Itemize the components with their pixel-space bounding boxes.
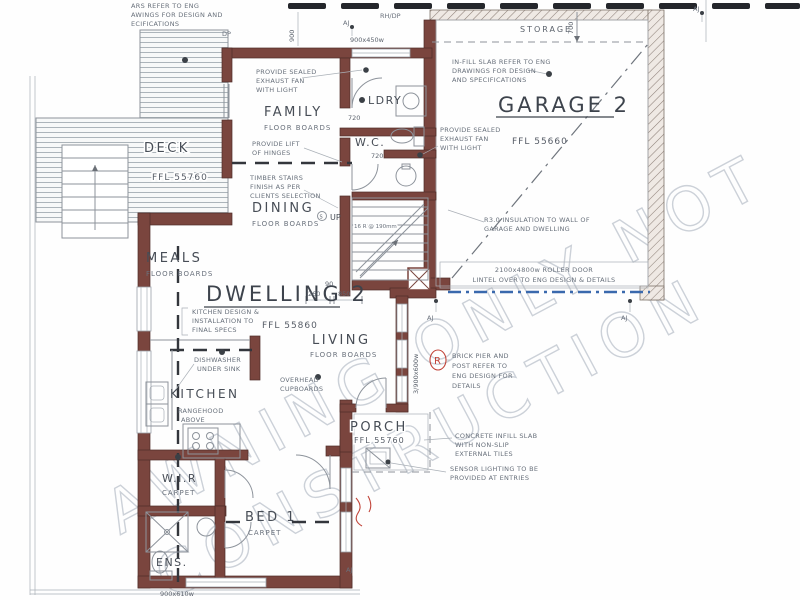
room-label-ens: ENS.: [156, 556, 188, 569]
deck-area: [36, 30, 228, 238]
sealed-fan1-2: EXHAUST FAN: [256, 77, 305, 85]
overhead-2: CUPBOARDS: [280, 385, 323, 393]
lift-hinges-1: PROVIDE LIFT: [252, 140, 300, 148]
room-label-garage: GARAGE 2: [498, 93, 630, 117]
room-label-porch: PORCH: [350, 420, 408, 435]
room-label-meals: MEALS: [146, 251, 202, 266]
brick-pier: [408, 268, 430, 290]
sealed-fan1-3: WITH LIGHT: [256, 86, 298, 94]
wir-floor: CARPET: [162, 489, 195, 497]
brick-pier-3: ENG DESIGN FOR: [452, 372, 513, 380]
meals-window: [137, 287, 151, 331]
aj-marker-1: AJ: [343, 19, 349, 27]
kitchen-window: [137, 351, 151, 433]
floor-plan-drawing: AWNING ONLY NOT CONSTRUCTION: [0, 0, 800, 600]
dim-850: 850: [338, 290, 350, 298]
dishwasher-2: UNDER SINK: [197, 365, 241, 373]
rangehood-2: ABOVE: [181, 416, 205, 424]
sealed-fan2-1: PROVIDE SEALED: [440, 126, 501, 134]
garage-ffl: FFL 55660: [512, 137, 568, 147]
room-label-deck: DECK: [144, 141, 190, 156]
rangehood-1: RANGEHOOD: [178, 407, 224, 415]
ldry-door-720: 720: [348, 114, 360, 122]
stair-symbol: S: [320, 215, 323, 221]
bed-window-dim: 900x610w: [160, 590, 195, 598]
concrete-2: WITH NON-SLIP: [455, 441, 509, 449]
dp-marker: DP: [222, 30, 231, 38]
sensor-1: SENSOR LIGHTING TO BE: [450, 465, 538, 473]
dim-260: 260: [308, 290, 320, 298]
family-floor: FLOOR BOARDS: [264, 124, 331, 132]
lift-hinges-2: OF HINGES: [252, 149, 291, 157]
easement-dashed-line: [288, 3, 800, 9]
infill-note-2: DRAWINGS FOR DESIGN: [452, 67, 536, 75]
room-label-living: LIVING: [312, 333, 371, 348]
porch-ffl: FFL 55760: [354, 436, 405, 445]
room-label-ldry: LDRY: [368, 94, 402, 107]
room-label-dining: DINING: [252, 201, 314, 216]
wc-door-720: 720: [371, 152, 383, 160]
bed1-bottom-window: [186, 578, 266, 587]
concrete-3: EXTERNAL TILES: [455, 450, 513, 458]
aj-marker-2: AJ: [693, 5, 699, 13]
bed1-floor: CARPET: [248, 529, 281, 537]
dim-90: 90: [325, 280, 333, 288]
kitchen-spec-2: INSTALLATION TO: [192, 317, 254, 325]
roller-door-note-2: LINTEL OVER TO ENG DESIGN & DETAILS: [473, 276, 616, 284]
timber-stairs-2: FINISH AS PER: [250, 183, 301, 191]
room-label-family: FAMILY: [264, 105, 323, 120]
red-markup-letter: R: [434, 356, 441, 367]
dim-900: 900: [288, 30, 296, 42]
ldry-window: [352, 49, 410, 57]
insulation-note-2: GARAGE AND DWELLING: [484, 225, 570, 233]
living-window-dim: 3/900x600w: [412, 353, 420, 394]
deck-ffl: FFL 55760: [152, 173, 208, 183]
room-label-wir: W.I.R: [162, 472, 197, 485]
sealed-fan1-1: PROVIDE SEALED: [256, 68, 317, 76]
room-label-storage: STORAGE: [520, 25, 572, 34]
up-label: UP: [330, 213, 341, 222]
kitchen-spec-1: KITCHEN DESIGN &: [192, 308, 259, 316]
note-topleft-1: ARS REFER TO ENG: [131, 2, 199, 10]
sensor-2: PROVIDED AT ENTRIES: [450, 474, 529, 482]
room-label-bed1: BED 1: [245, 510, 297, 525]
timber-stairs-3: CLIENTS SELECTION: [250, 192, 321, 200]
aj-marker-3: AJ: [427, 314, 433, 322]
ldry-window-dim: 900x450w: [350, 36, 385, 44]
living-windows: [397, 304, 407, 402]
wc-basin: [396, 164, 416, 186]
brick-pier-2: POST REFER TO: [452, 362, 507, 370]
roller-door-note-1: 2100x4800w ROLLER DOOR: [495, 266, 593, 274]
aj-marker-5: AJ: [346, 566, 352, 574]
concrete-1: CONCRETE INFILL SLAB: [455, 432, 537, 440]
room-label-wc: W.C.: [355, 136, 385, 149]
note-topleft-3: ECIFICATIONS: [131, 20, 179, 28]
brick-pier-4: DETAILS: [452, 382, 481, 390]
brick-pier-1: BRICK PIER AND: [452, 352, 509, 360]
dishwasher-1: DISHWASHER: [194, 356, 241, 364]
timber-stairs-1: TIMBER STAIRS: [249, 174, 303, 182]
floor-plan-page: AWNING ONLY NOT CONSTRUCTION: [0, 0, 800, 600]
infill-note-3: AND SPECIFICATIONS: [452, 76, 527, 84]
infill-note-1: IN-FILL SLAB REFER TO ENG: [452, 58, 551, 66]
meals-floor: FLOOR BOARDS: [146, 270, 213, 278]
kitchen-spec-3: FINAL SPECS: [192, 326, 237, 334]
note-topleft-2: AWINGS FOR DESIGN AND: [131, 11, 223, 19]
rhdp-marker: RH/DP: [380, 12, 401, 20]
stairs-riser-note: 16 R @ 190mm: [354, 224, 397, 230]
dwelling-ffl: FFL 55860: [262, 321, 318, 331]
overhead-1: OVERHEAD: [280, 376, 319, 384]
aj-marker-4: AJ: [621, 314, 627, 322]
sealed-fan2-2: EXHAUST FAN: [440, 135, 489, 143]
living-floor: FLOOR BOARDS: [310, 351, 377, 359]
sealed-fan2-3: WITH LIGHT: [440, 144, 482, 152]
insulation-note-1: R3.0 INSULATION TO WALL OF: [484, 216, 590, 224]
room-label-kitchen: KITCHEN: [170, 387, 240, 401]
dining-floor: FLOOR BOARDS: [252, 220, 319, 228]
